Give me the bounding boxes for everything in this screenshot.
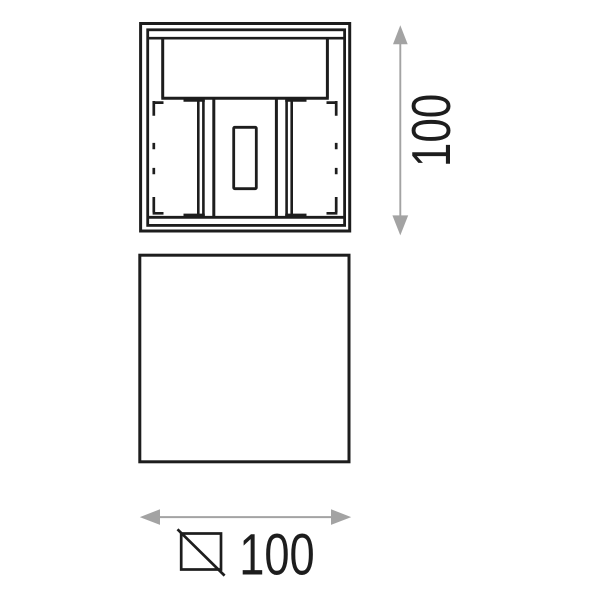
svg-text:100: 100: [400, 94, 462, 167]
svg-text:100: 100: [239, 523, 315, 588]
